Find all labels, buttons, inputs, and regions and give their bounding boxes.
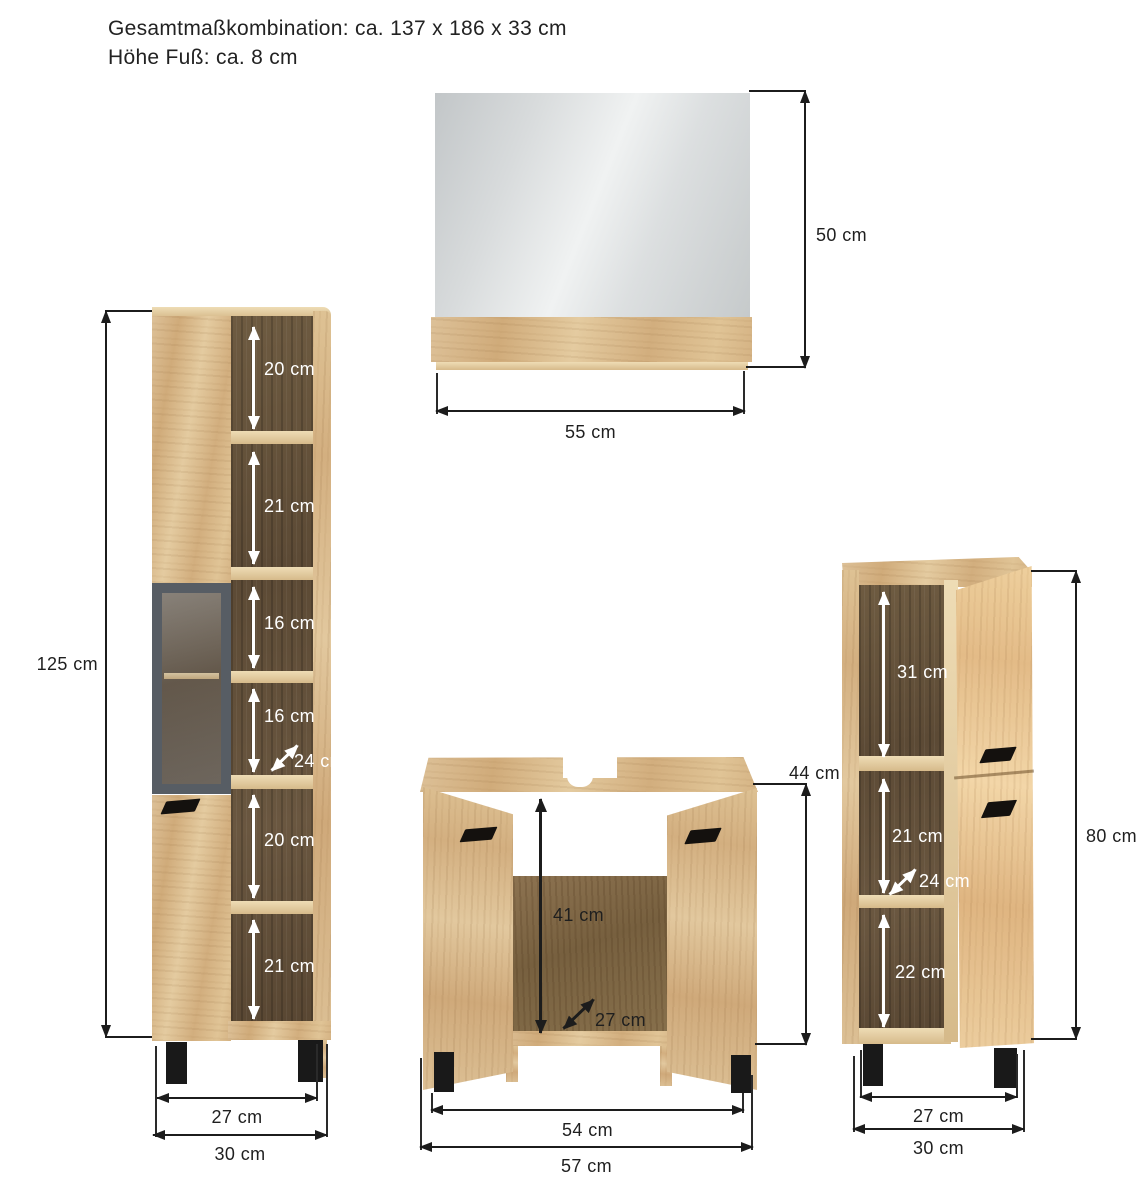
sink-cabinet-inner-width-label: 54 cm: [431, 1121, 744, 1139]
measure-arrow: [252, 795, 255, 898]
furniture-dimension-diagram: Gesamtmaßkombination: ca. 137 x 186 x 33…: [0, 0, 1139, 1200]
shelf-height-label: 21 cm: [264, 957, 315, 975]
side-cabinet-outer-width-label: 30 cm: [853, 1139, 1024, 1157]
interior-shelf: [164, 673, 219, 679]
overall-size-text: Gesamtmaßkombination: ca. 137 x 186 x 33…: [108, 17, 567, 41]
sink-cabinet-outer-width-dim-arrow: [420, 1146, 753, 1148]
measure-arrow: [882, 592, 885, 757]
shelf-height-label: 16 cm: [264, 614, 315, 632]
mirror-height-label: 50 cm: [816, 226, 867, 244]
mirror-glass: [435, 93, 750, 317]
dim-extension-line: [105, 310, 153, 312]
sink-cabinet-depth-label: 27 cm: [595, 1011, 646, 1029]
mirror-shelf: [431, 317, 752, 362]
mirror-width-dim-arrow: [436, 410, 745, 412]
tall-cabinet-outer-width-label: 30 cm: [153, 1145, 327, 1163]
tall-cabinet-inner-width-dim-arrow: [157, 1097, 317, 1099]
glass-door: [152, 583, 231, 794]
interior-shelf: [231, 901, 313, 914]
sink-cabinet-inner-height-label: 41 cm: [553, 906, 604, 924]
dim-extension-line: [755, 1043, 807, 1045]
shelf-height-label: 16 cm: [264, 707, 315, 725]
measure-arrow: [252, 587, 255, 668]
cabinet-bottom-panel: [228, 1021, 331, 1040]
tall-cabinet-inner-width-label: 27 cm: [157, 1108, 317, 1126]
interior-shelf: [231, 775, 313, 789]
cabinet-leg: [731, 1055, 751, 1093]
interior-shelf: [231, 671, 313, 683]
measure-arrow: [882, 779, 885, 893]
dim-extension-line: [1023, 1050, 1025, 1132]
interior-shelf: [859, 756, 951, 771]
cabinet-leg: [298, 1040, 323, 1082]
door-edge: [944, 580, 958, 1042]
shelf-height-label: 21 cm: [264, 497, 315, 515]
dim-extension-line: [753, 783, 807, 785]
sink-cabinet-inner-width-dim-arrow: [431, 1109, 744, 1111]
measure-arrow: [252, 452, 255, 564]
cabinet-side-panel: [313, 311, 331, 1040]
measure-arrow: [252, 920, 255, 1019]
cabinet-leg: [434, 1052, 454, 1092]
dim-extension-line: [420, 1058, 422, 1150]
shelf-height-label: 20 cm: [264, 360, 315, 378]
side-cabinet-inner-width-dim-arrow: [860, 1096, 1017, 1098]
side-cabinet-depth-label: 24 cm: [919, 872, 970, 890]
shelf-height-label: 20 cm: [264, 831, 315, 849]
cabinet-bottom-panel: [859, 1028, 951, 1044]
cabinet-leg: [166, 1042, 187, 1084]
interior-shelf: [231, 567, 313, 580]
dim-extension-line: [751, 1075, 753, 1150]
dim-extension-line: [105, 1036, 153, 1038]
glass-pane: [162, 593, 221, 784]
measure-arrow: [252, 689, 255, 772]
tall-cabinet-depth-label: 24 cm: [294, 752, 345, 770]
cabinet-upper-door: [152, 316, 231, 583]
sink-cabinet-height-dim-arrow: [805, 784, 807, 1045]
cabinet-leg: [863, 1044, 883, 1086]
interior-shelf: [231, 431, 313, 444]
mirror-width-label: 55 cm: [436, 423, 745, 441]
tall-cabinet-height-dim-arrow: [105, 311, 107, 1037]
side-cabinet-height-dim-arrow: [1075, 571, 1077, 1039]
dim-extension-line: [749, 90, 806, 92]
side-cabinet-height-label: 80 cm: [1086, 827, 1137, 845]
dim-extension-line: [860, 1050, 862, 1098]
cabinet-bottom-panel: [500, 1031, 678, 1046]
measure-arrow: [882, 915, 885, 1027]
side-cabinet-outer-width-dim-arrow: [853, 1128, 1024, 1130]
cabinet-lower-door: [152, 795, 231, 1041]
pipe-notch: [563, 757, 617, 778]
dim-extension-line: [746, 366, 806, 368]
measure-arrow: [252, 327, 255, 429]
inner-height-measure-arrow: [539, 799, 542, 1033]
dim-extension-line: [326, 1044, 328, 1137]
sink-cabinet-outer-width-label: 57 cm: [420, 1157, 753, 1175]
shelf-height-label: 21 cm: [892, 827, 943, 845]
shelf-height-label: 22 cm: [895, 963, 946, 981]
tall-cabinet-height-label: 125 cm: [28, 655, 98, 673]
mirror-shelf-edge: [436, 362, 748, 370]
cabinet-side-panel: [842, 570, 859, 1044]
shelf-height-label: 31 cm: [897, 663, 948, 681]
foot-height-text: Höhe Fuß: ca. 8 cm: [108, 46, 298, 70]
cabinet-leg: [994, 1048, 1017, 1088]
tall-cabinet-outer-width-dim-arrow: [153, 1134, 327, 1136]
mirror-height-dim-arrow: [804, 91, 806, 368]
interior-shelf: [859, 895, 951, 908]
sink-cabinet-height-label: 44 cm: [789, 764, 840, 782]
dim-extension-line: [853, 1056, 855, 1132]
side-cabinet-inner-width-label: 27 cm: [860, 1107, 1017, 1125]
